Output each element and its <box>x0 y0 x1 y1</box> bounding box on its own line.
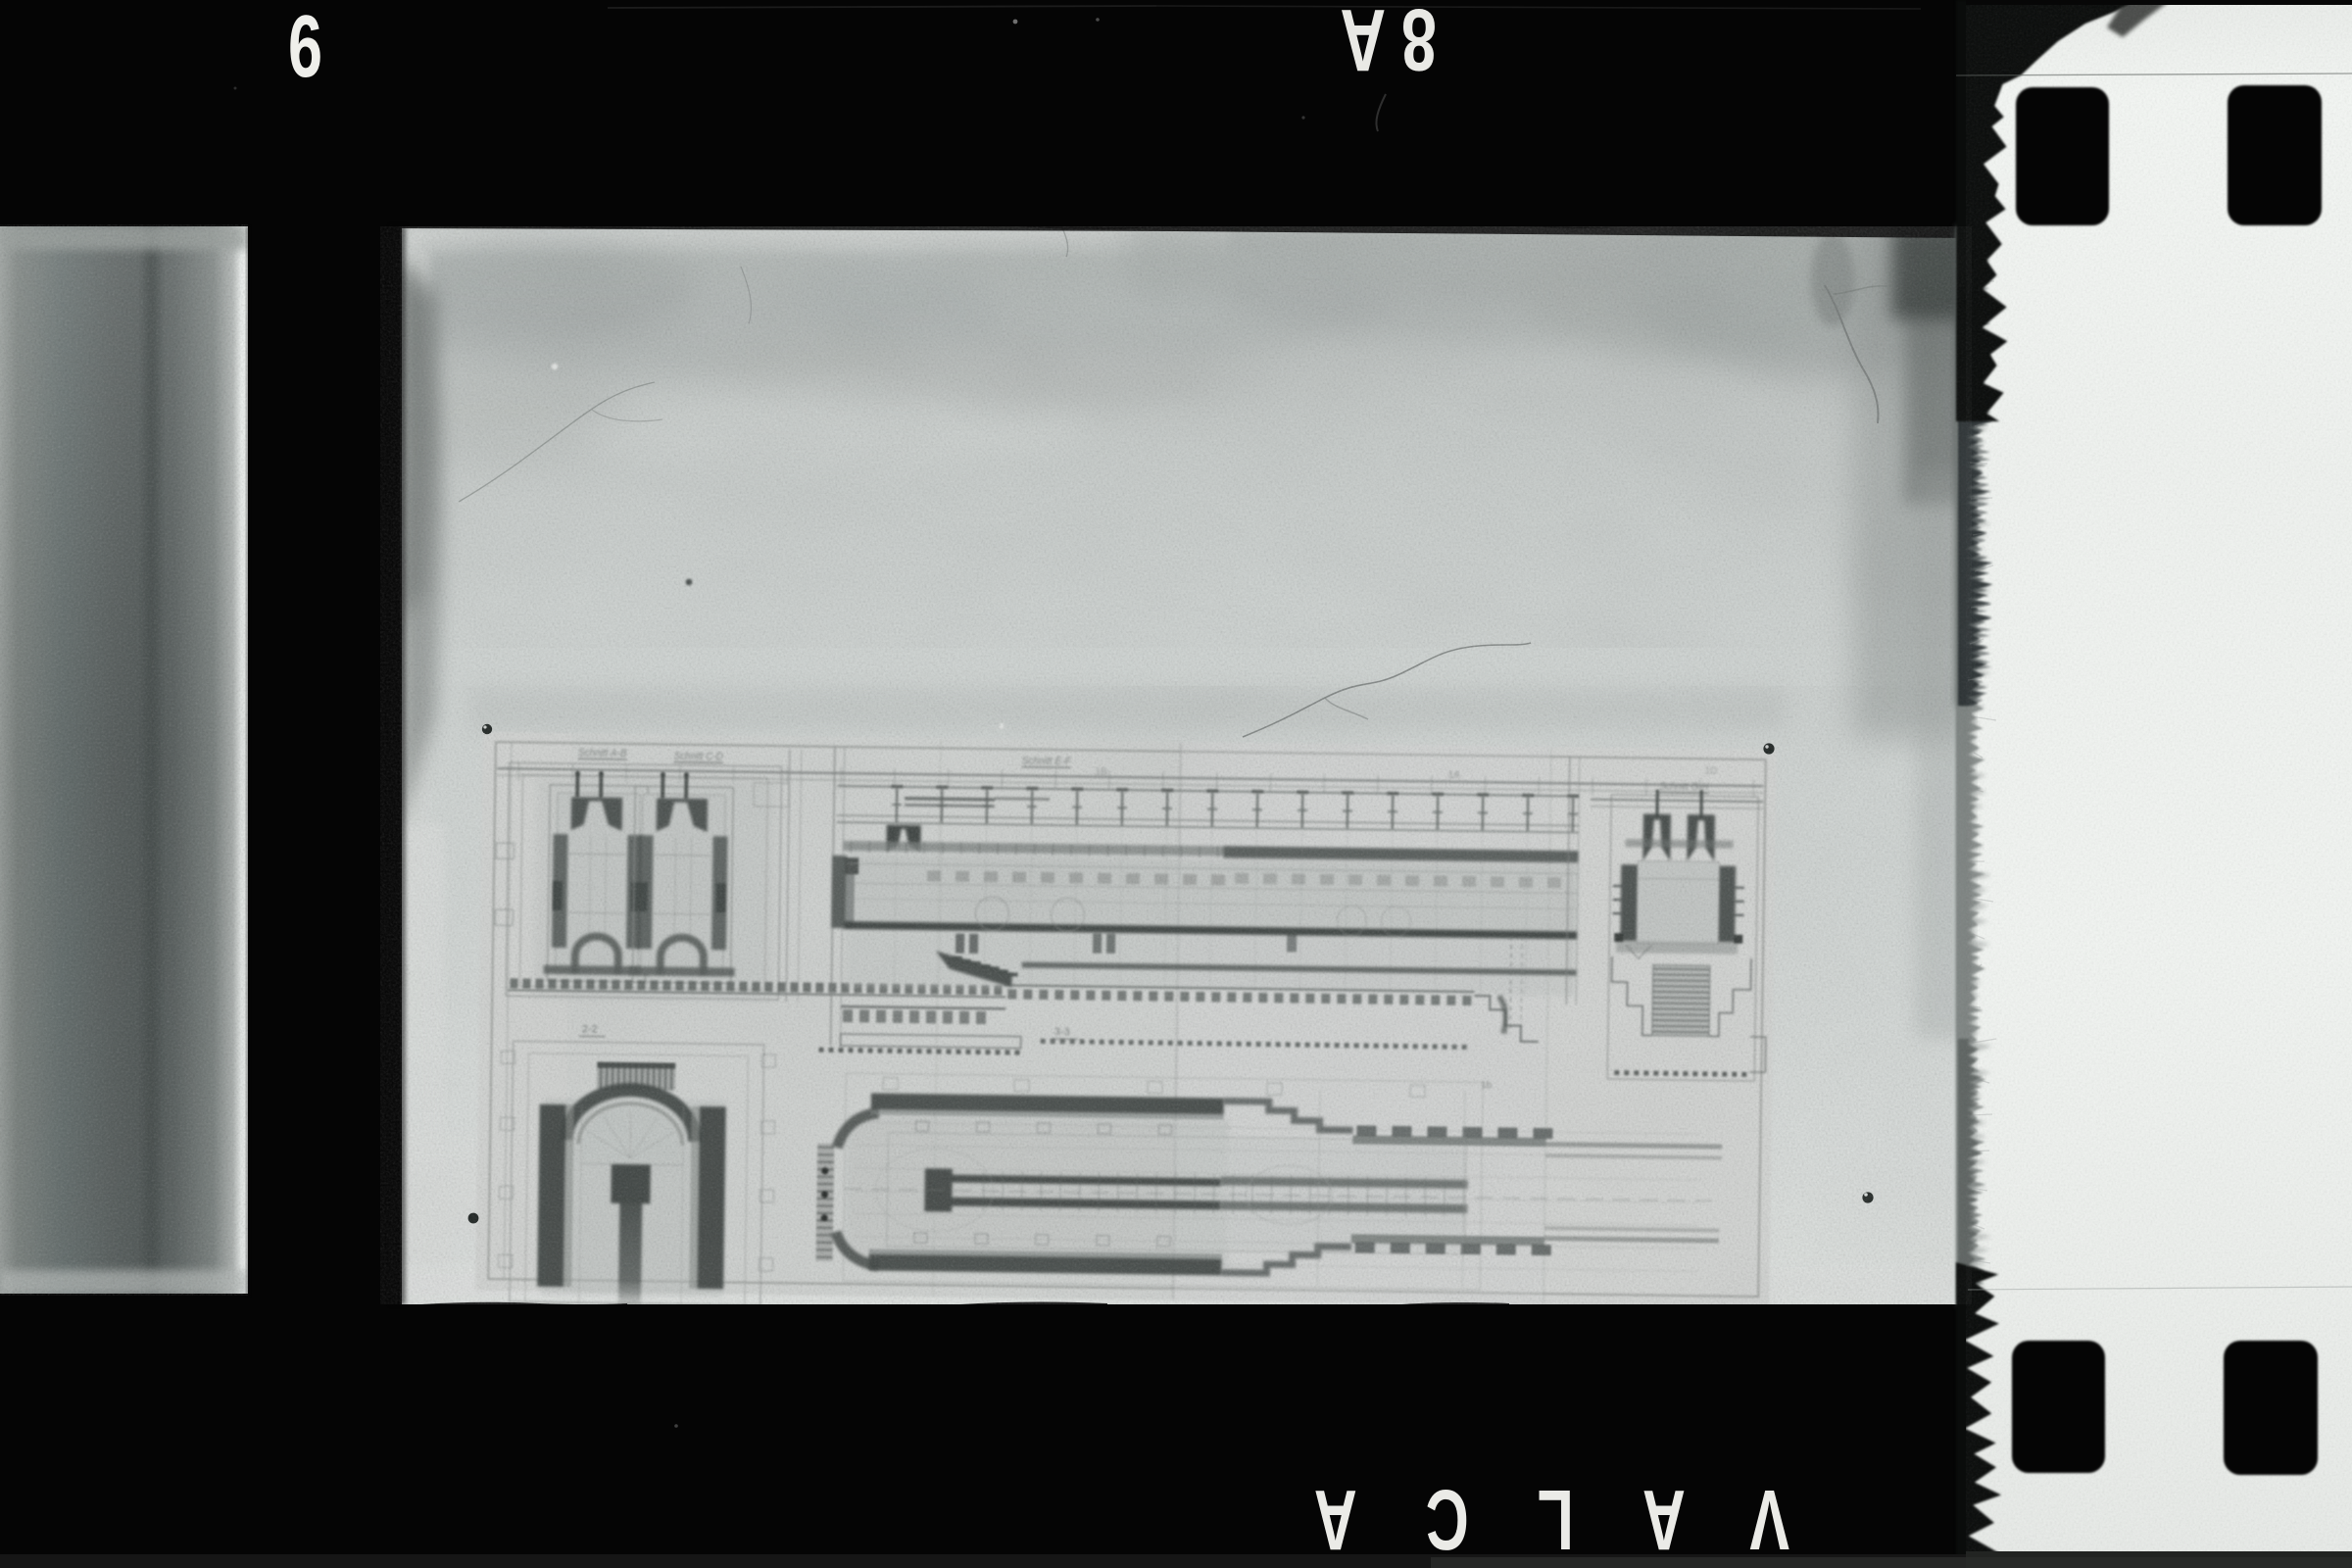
svg-text:8A: 8A <box>1324 0 1437 89</box>
svg-text:6: 6 <box>288 0 322 96</box>
svg-text:VALCA: VALCA <box>1246 1472 1789 1567</box>
